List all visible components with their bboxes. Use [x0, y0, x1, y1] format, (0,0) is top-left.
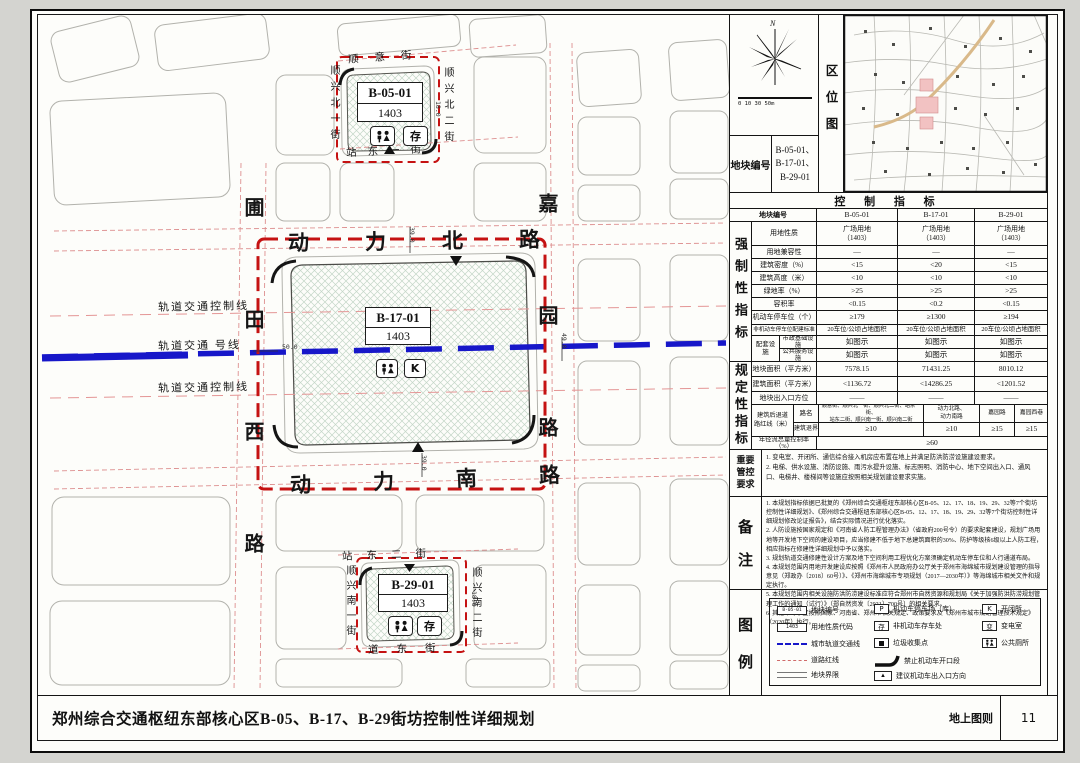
cell: 如图示	[974, 349, 1047, 361]
legend-item-no-opening: 禁止机动车开口段	[874, 654, 960, 667]
notes-section: 备注 1. 本规划指标依据已批复的《郑州综合交通枢纽东部核心区B-05、12、1…	[730, 496, 1047, 589]
row-label: 建筑高度（米）	[752, 272, 816, 284]
cell: <0.2	[897, 298, 974, 310]
dimension-south: 39.0	[420, 455, 428, 471]
entry-direction-icon: ▲	[874, 671, 892, 681]
switch-station-icon: K	[404, 359, 426, 378]
cell: ≥179	[816, 311, 897, 324]
rail-line-symbol	[777, 643, 807, 645]
row-label: 容积率	[752, 298, 816, 310]
cell: 20车位/公顷占地面积	[897, 325, 974, 335]
control-indicator-table: 控 制 指 标 地块编号 B-05-01 B-17-01 B-29-01 用地性…	[730, 192, 1047, 449]
block-code: 1403	[366, 328, 430, 345]
row-label: 建筑面积（平方米）	[752, 377, 816, 391]
toilet-icon	[376, 359, 398, 378]
legend-label: 图例	[730, 590, 762, 695]
row-label: 建筑密度（%）	[752, 259, 816, 271]
block-label-b05: B-05-01 1403	[357, 82, 423, 122]
requirements-section: 重要管控要求 1. 变电室、开闭所、通信综合接入机房应布置在地上并满足防洪防涝设…	[730, 449, 1047, 496]
row-label: 非机动车停车位配建标准	[752, 325, 816, 335]
row-label: 绿地率（%）	[752, 285, 816, 297]
cell: <15	[974, 259, 1047, 271]
row-label: 机动车停车位（个）	[752, 311, 816, 324]
toilet-icon	[370, 126, 395, 146]
cell: >25	[897, 285, 974, 297]
cell: <10	[816, 272, 897, 284]
legend-item-block-id: B-05-01 地块编号	[777, 605, 839, 615]
block-code: 1403	[379, 595, 447, 612]
top-section: N 0 10 30 50m 地块编号 B-05-01、 B-17-01、 B-2…	[730, 15, 1047, 192]
transformer-icon: 变	[982, 621, 997, 631]
toilet-icon	[982, 638, 997, 648]
cell: <20	[897, 259, 974, 271]
legend-item-trash: 垃圾收集点	[874, 638, 928, 648]
cell: <0.15	[974, 298, 1047, 310]
mandatory-group-label: 强制性指标	[730, 221, 752, 361]
setback-roads-1: 顺意街、顺兴北一街、顺兴北二街、站东一街、 站东二街、顺兴南一街、顺兴南二街	[818, 405, 923, 422]
cell: <15	[816, 259, 897, 271]
dimension-b29: 18.0	[470, 591, 478, 607]
bike-storage-icon: 存	[417, 616, 442, 636]
trash-point-icon	[874, 638, 889, 648]
cell: 如图示	[897, 349, 974, 361]
block-id-symbol: B-05-01	[777, 606, 807, 615]
cell: <1201.52	[974, 377, 1047, 391]
runoff-label: 年径流总量控制率（%）	[752, 437, 816, 449]
location-map-label: 区位图	[822, 64, 841, 144]
cell: ≥194	[974, 311, 1047, 324]
cell: 如图示	[816, 349, 897, 361]
setback-value: ≥15	[1014, 423, 1048, 436]
rail-control-line-label-bottom: 轨道交通控制线	[158, 378, 249, 396]
compass-rose-icon	[744, 25, 806, 91]
cell: —	[897, 246, 974, 258]
legend-body: B-05-01 地块编号 1403 用地性质代码 城市轨道交通线 道路红线	[762, 590, 1047, 695]
row-label: 公共服务设施	[780, 349, 816, 361]
sheet-title: 郑州综合交通枢纽东部核心区B-05、B-17、B-29街坊控制性详细规划	[52, 696, 535, 740]
setback-row1-label: 路名	[794, 405, 818, 422]
dimension-rail: 50.0	[282, 343, 298, 351]
requirements-label: 重要管控要求	[730, 450, 762, 496]
col-b05: B-05-01	[816, 209, 897, 221]
row-label: 地块出入口方位	[752, 392, 816, 404]
road-label-jiayuan: 嘉园路	[532, 193, 561, 529]
block-code: 1403	[358, 104, 422, 122]
cell: 8010.12	[974, 362, 1047, 376]
cell: >25	[974, 285, 1047, 297]
location-map-strip: 区位图	[819, 15, 844, 192]
row-label: 用地兼容性	[752, 246, 816, 258]
cell: 如图示	[974, 336, 1047, 348]
block-boundary-symbol	[777, 672, 807, 678]
setback-value: ≥10	[923, 423, 979, 436]
cell: 20车位/公顷占地面积	[816, 325, 897, 335]
row-label: 地块面积（平方米）	[752, 362, 816, 376]
rail-line-label: 轨道交通 号线	[158, 336, 241, 353]
legend-item-switch-station: K 开闭所	[982, 604, 1022, 614]
parking-icon: P	[874, 604, 889, 614]
col-header-label: 地块编号	[730, 209, 816, 221]
legend-item-use-code: 1403 用地性质代码	[777, 622, 853, 632]
cell: <10	[897, 272, 974, 284]
block-id: B-05-01	[358, 83, 422, 104]
scale-labels: 0 10 30 50m	[738, 101, 774, 107]
block-label-b29: B-29-01 1403	[378, 574, 448, 612]
road-label-daodong: 道东街	[368, 640, 454, 657]
runoff-value: ≥60	[816, 437, 1047, 449]
legend-item-toilet: 公共厕所	[982, 638, 1029, 648]
block-no-values: B-05-01、 B-17-01、 B-29-01	[772, 136, 818, 192]
legend-item-road-redline: 道路红线	[777, 655, 839, 665]
legend-section: 图例 B-05-01 地块编号 1403 用地性质代码 城市轨道交通线	[730, 589, 1047, 695]
row-label: 市政基础设施	[780, 336, 816, 348]
cell: ——	[897, 392, 974, 404]
cell: ——	[974, 392, 1047, 404]
legend-item-bike-storage: 存 非机动车存车处	[874, 621, 942, 631]
use-code-symbol: 1403	[777, 623, 807, 632]
setback-row2-label: 建筑退界	[794, 423, 818, 436]
planning-map: 动力北路 动力南路 圃田西路 嘉园路 顺意街 站东一街 顺兴北一街 顺兴北二街 …	[38, 15, 729, 695]
cell: <1136.72	[816, 377, 897, 391]
col-b29: B-29-01	[974, 209, 1047, 221]
legend-item-entry-direction: ▲ 建议机动车出入口方向	[874, 671, 966, 681]
setback-value: ≥15	[979, 423, 1014, 436]
col-b17: B-17-01	[897, 209, 974, 221]
cell: 广场用地 （1403）	[897, 222, 974, 245]
cell: —	[974, 246, 1047, 258]
setback-roads-3: 嘉园路	[979, 405, 1014, 422]
title-bar: 郑州综合交通枢纽东部核心区B-05、B-17、B-29街坊控制性详细规划 地上图…	[38, 695, 1057, 739]
road-label-shunxing-north-1: 顺兴北一街	[326, 65, 341, 145]
cell: ——	[816, 392, 897, 404]
setback-roads-2: 动力北路、 动力南路	[923, 405, 979, 422]
scale-bar	[738, 97, 812, 99]
block-id: B-17-01	[366, 308, 430, 328]
bike-storage-icon: 存	[874, 621, 889, 631]
legend-item-rail-line: 城市轨道交通线	[777, 639, 860, 649]
road-redline-sym	[777, 660, 807, 661]
block-no-label: 地块编号	[730, 136, 772, 192]
cell: 广场用地 （1403）	[974, 222, 1047, 245]
road-label-putian-west: 圃田西路	[238, 197, 267, 645]
cell: >25	[816, 285, 897, 297]
notes-label: 备注	[730, 497, 762, 589]
block-id: B-29-01	[379, 575, 447, 595]
cell: ≥1300	[897, 311, 974, 324]
switch-station-icon: K	[982, 604, 997, 614]
location-map	[844, 15, 1047, 192]
no-opening-icon	[874, 654, 900, 667]
cell: 71431.25	[897, 362, 974, 376]
setback-roads-4: 嘉园西巷	[1014, 405, 1048, 422]
cell: 如图示	[897, 336, 974, 348]
legend-item-block-boundary: 地块界限	[777, 670, 839, 680]
cell: <14286.25	[897, 377, 974, 391]
setback-value: ≥10	[818, 423, 923, 436]
requirements-text: 1. 变电室、开闭所、通信综合接入机房应布置在地上并满足防洪防涝设施建设要求。 …	[762, 450, 1047, 496]
legend-box: B-05-01 地块编号 1403 用地性质代码 城市轨道交通线 道路红线	[769, 598, 1041, 686]
legend-item-parking: P 机动车停车场（库）	[874, 604, 956, 614]
cell: <0.15	[816, 298, 897, 310]
dimension-b05: 18.0	[434, 101, 442, 117]
info-panel: N 0 10 30 50m 地块编号 B-05-01、 B-17-01、 B-2…	[729, 15, 1048, 695]
cell: <10	[974, 272, 1047, 284]
cell: —	[816, 246, 897, 258]
bike-storage-icon: 存	[403, 126, 428, 146]
notes-text: 1. 本规划指标依据已批复的《郑州综合交通枢纽东部核心区B-05、12、17、1…	[762, 497, 1047, 589]
legend-item-transformer: 变 变电室	[982, 621, 1022, 631]
table-title: 控 制 指 标	[730, 192, 1047, 208]
cell: 如图示	[816, 336, 897, 348]
sheet-type-label: 地上图则	[898, 696, 993, 740]
toilet-icon	[388, 616, 413, 636]
dimension-north: 39.0	[408, 227, 416, 243]
peitao-span-label: 配套设施	[752, 335, 780, 361]
road-label-shunxing-south-1: 顺兴南一街	[342, 565, 357, 640]
row-label: 用地性质	[752, 222, 816, 245]
page-number: 11	[1000, 696, 1057, 740]
road-label-shunxing-north-2: 顺兴北二街	[440, 67, 455, 147]
block-label-b17: B-17-01 1403	[365, 307, 431, 345]
cell: 20车位/公顷占地面积	[974, 325, 1047, 335]
regulatory-group-label: 规定性指标	[730, 361, 752, 449]
cell: 广场用地 （1403）	[816, 222, 897, 245]
block-no-row: 地块编号 B-05-01、 B-17-01、 B-29-01	[730, 135, 819, 192]
planning-sheet-page: 动力北路 动力南路 圃田西路 嘉园路 顺意街 站东一街 顺兴北一街 顺兴北二街 …	[0, 0, 1080, 763]
cell: 7578.15	[816, 362, 897, 376]
setback-span-label: 建筑后退道路红线（米）	[752, 404, 794, 436]
compass-cell: N 0 10 30 50m	[730, 15, 819, 135]
dimension-east: 49.0	[560, 333, 568, 349]
rail-control-line-label-top: 轨道交通控制线	[158, 297, 249, 315]
